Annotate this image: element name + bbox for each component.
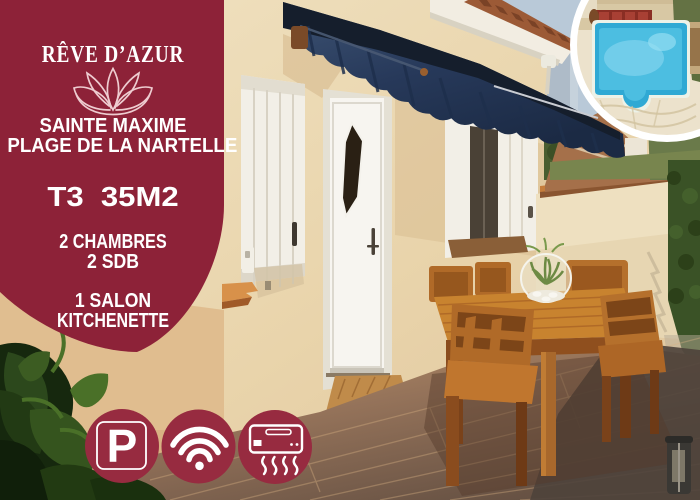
svg-text:P: P: [107, 420, 138, 472]
